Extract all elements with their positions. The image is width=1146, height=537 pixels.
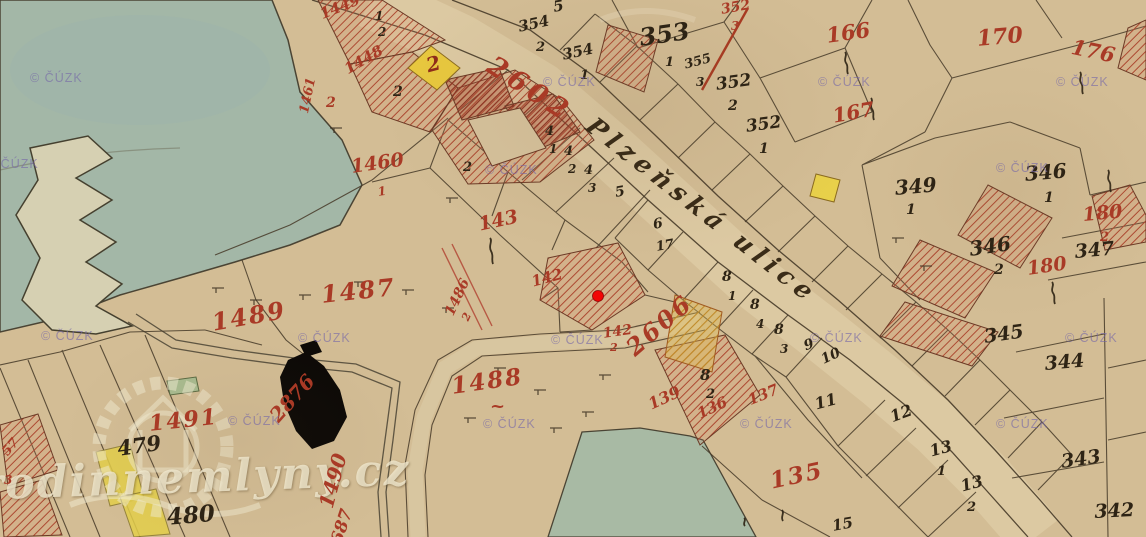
red-dot-marker [593,291,604,302]
historic-cadastral-map[interactable]: Plzeňská ulice rodinnemlyny.cz 535423541… [0,0,1146,537]
water-area-stream-mouth [548,428,756,537]
map-drawing [0,0,1146,537]
ink-blob [280,340,347,449]
